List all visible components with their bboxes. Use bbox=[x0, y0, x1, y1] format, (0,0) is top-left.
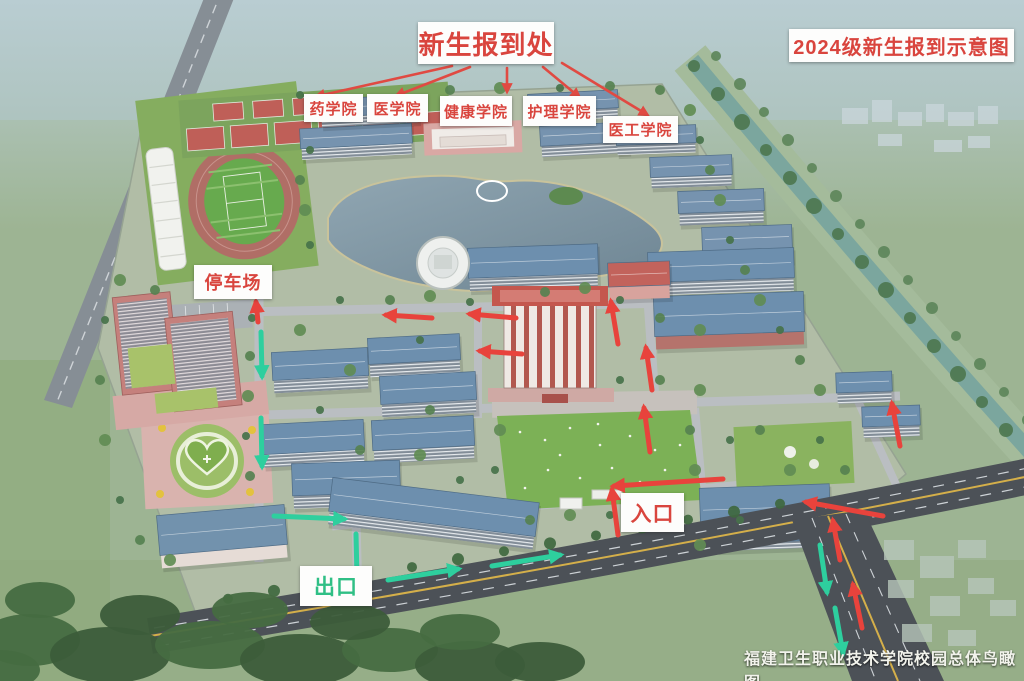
main-tower bbox=[488, 286, 614, 405]
map-caption: 福建卫生职业技术学院校园总体鸟瞰图 bbox=[744, 645, 1024, 681]
registration-point-label: 新生报到处 bbox=[418, 22, 554, 64]
college-label-nursing: 护理学院 bbox=[523, 96, 596, 126]
diagram-title: 2024级新生报到示意图 bbox=[789, 29, 1014, 62]
parking-label: 停车场 bbox=[194, 265, 272, 299]
college-label-health: 健康学院 bbox=[440, 96, 512, 126]
exit-label: 出口 bbox=[300, 566, 372, 606]
campus-illustration bbox=[0, 0, 1024, 681]
entrance-label: 入口 bbox=[621, 493, 684, 532]
college-label-pharmacy: 药学院 bbox=[304, 94, 363, 122]
college-label-medicine: 医学院 bbox=[367, 94, 428, 122]
college-label-medical-engineering: 医工学院 bbox=[603, 116, 678, 143]
round-building bbox=[417, 237, 469, 289]
campus-aerial-map: 新生报到处 2024级新生报到示意图 药学院 医学院 健康学院 护理学院 医工学… bbox=[0, 0, 1024, 681]
